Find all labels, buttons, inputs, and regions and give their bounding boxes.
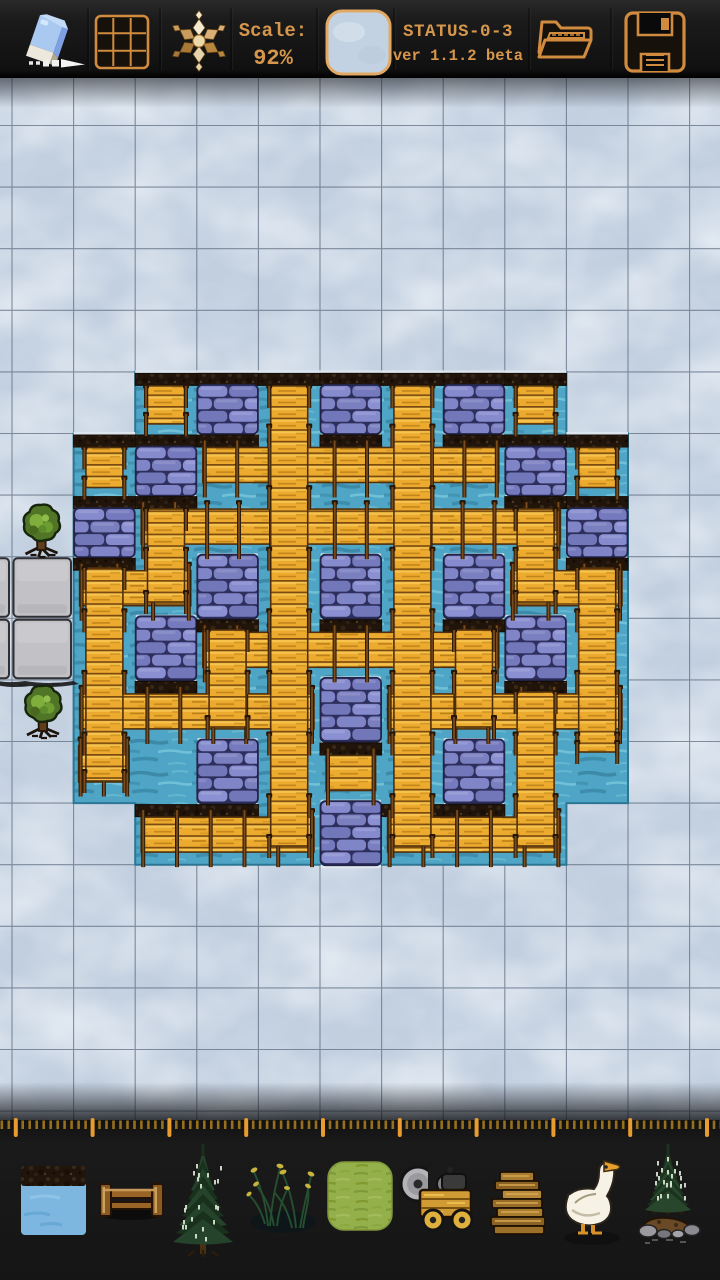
svg-text:Scale:: Scale:	[239, 20, 307, 42]
svg-text:92%: 92%	[253, 46, 293, 71]
svg-text:STATUS-0-3: STATUS-0-3	[403, 22, 513, 42]
svg-text:ver 1.1.2 beta: ver 1.1.2 beta	[393, 47, 523, 65]
